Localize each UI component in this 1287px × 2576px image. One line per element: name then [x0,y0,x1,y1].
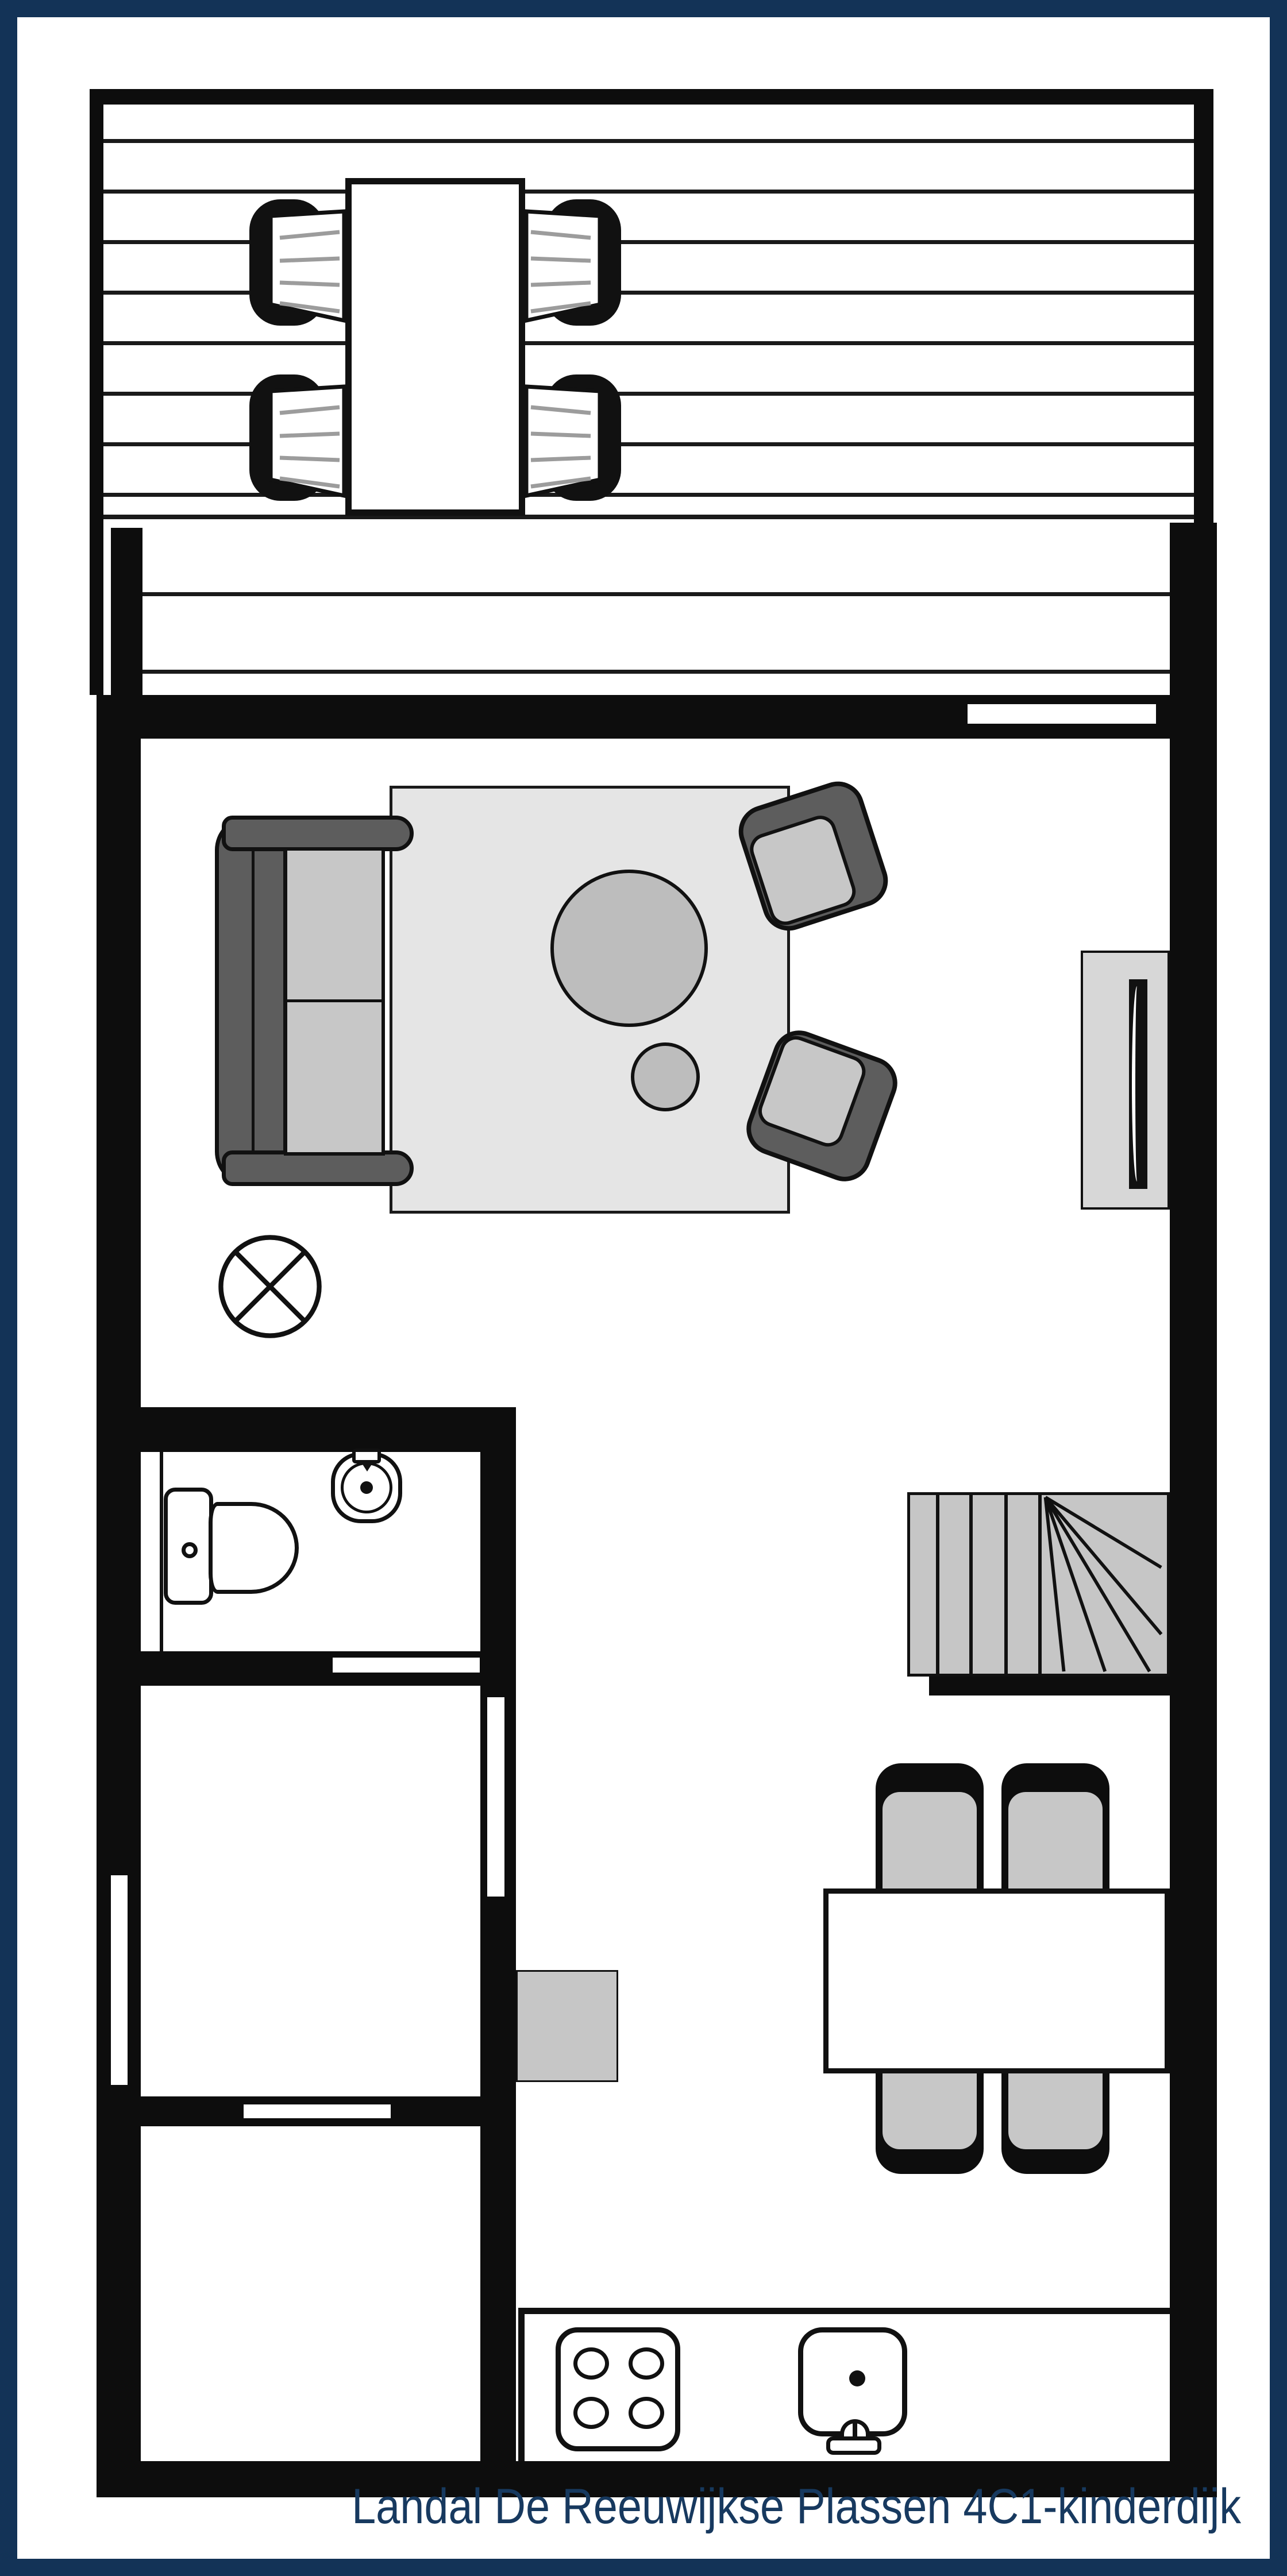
sofa-armrest [222,1150,414,1186]
stairs-icon [907,1492,1170,1677]
bathroom-inner-line [160,1452,163,1651]
deck-fence-top [90,89,1213,105]
left-wall-window [111,1875,128,2085]
outdoor-dining-table [345,178,525,516]
side-table [631,1042,700,1111]
stair-winder-lines [910,1495,1167,1674]
kitchen-cabinet [516,1970,618,2082]
dining-chair-seat [883,2073,977,2149]
coffee-table [550,870,708,1027]
radiator-curve [1132,986,1142,1181]
sofa-back-line [252,821,255,1180]
stove-burner [573,2347,609,2380]
sofa-back [215,816,287,1186]
plan-caption: Landal De Reeuwijkse Plassen 4C1-kinderd… [352,2481,1241,2532]
deck-edge-line [103,515,1194,519]
stairs-base-wall [929,1677,1170,1696]
deck-plank-line [103,139,1194,143]
dining-chair [1001,1763,1109,1888]
radiator-bar [1129,979,1147,1189]
deck-step-wall-left [111,528,142,695]
stove-burner [629,2397,664,2429]
deck-plank-line [103,190,1194,194]
sofa-seat-split [284,999,385,1002]
outdoor-chair-icon [525,373,623,503]
basin-drain [360,1481,373,1494]
deck-plank-line [103,341,1194,345]
ceiling-light-icon [217,1233,323,1340]
house-wall-right [1170,523,1217,2497]
dining-chair [876,2073,984,2174]
bathroom-door-opening [333,1658,480,1673]
toilet-flush-button [182,1542,198,1558]
dining-chair [876,1763,984,1888]
terrace-door-opening [968,704,1156,724]
outdoor-chair-icon [248,373,345,503]
toilet-bowl [209,1502,299,1594]
stove-icon [556,2327,680,2451]
sink-faucet-base [826,2436,881,2455]
kitchen-counter-edge-left [518,2308,525,2461]
dining-table [823,1888,1170,2073]
floor-plan-canvas: Landal De Reeuwijkse Plassen 4C1-kinderd… [0,0,1287,2576]
stove-burner [573,2397,609,2429]
kitchen-counter-edge-top [518,2308,1170,2314]
stove-burner [629,2347,664,2380]
hall-door-opening [487,1697,504,1897]
radiator [1081,951,1170,1210]
deck-fence-right [1194,89,1213,523]
bathroom-wall-right [480,1407,516,2461]
bathroom-wall-top [141,1407,514,1452]
sofa [215,816,414,1186]
deck-plank-line [142,670,1170,674]
dining-chair-seat [883,1792,977,1888]
sink-drain [849,2370,865,2386]
toilet-icon [164,1488,213,1605]
outdoor-chair-icon [248,198,345,327]
basin-tap [352,1449,381,1463]
basin-tap-spout [362,1463,372,1472]
outdoor-chair-icon [525,198,623,327]
sink-faucet-stem [853,2421,857,2436]
house-wall-left [97,695,141,2497]
deck-plank-line [142,592,1170,596]
dining-chair-seat [1008,2073,1103,2149]
bedroom-door-opening [244,2104,391,2118]
sofa-armrest [222,816,414,851]
dining-chair-seat [1008,1792,1103,1888]
deck-fence-left [90,89,103,695]
dining-chair [1001,2073,1109,2174]
